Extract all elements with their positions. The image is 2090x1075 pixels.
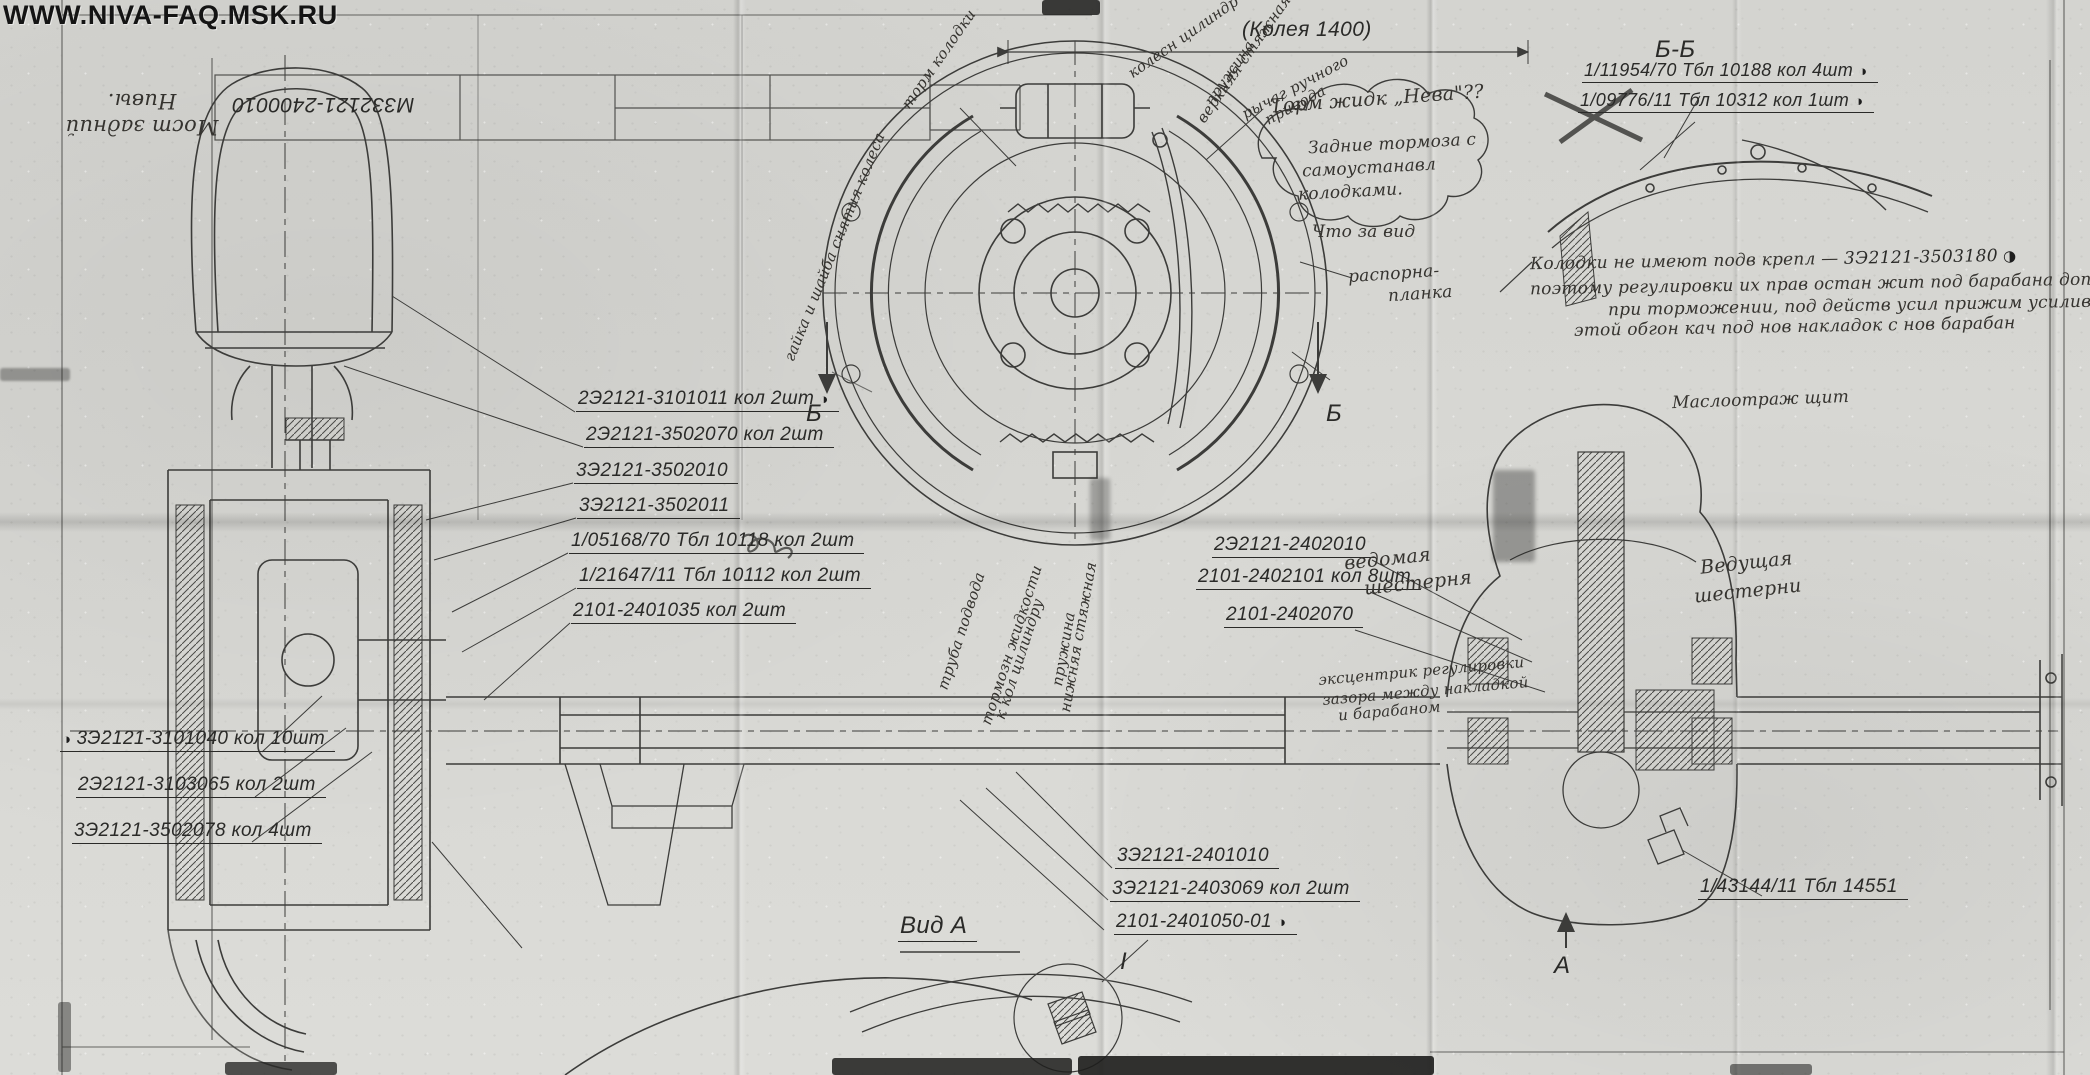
quadrant-mark-icon: ◑ — [1858, 63, 1867, 80]
part-callout: 3Э2121-3502011 — [577, 495, 740, 519]
scan-smudge — [1493, 470, 1535, 562]
scanned-drawing-sheet: WWW.NIVA-FAQ.MSK.RU М332121-2400010 Мост… — [0, 0, 2090, 1075]
note-shoes-part-number: 3Э2121-3503180 — [1844, 246, 1998, 269]
part-callout: 3Э2121-2401010 — [1115, 845, 1279, 869]
part-callout: 2Э2121-3502070 кол 2шт — [584, 424, 834, 448]
quadrant-mark-icon: ◑ — [1277, 914, 1286, 931]
part-callout: 2Э2121-3101011 кол 2шт◑ — [576, 388, 839, 412]
scan-smudge — [1078, 1056, 1434, 1075]
view-a-label: Вид А — [898, 912, 977, 942]
part-callout: 1/05168/70 Тбл 10118 кол 2шт — [569, 530, 864, 554]
detail-1-marker: I — [1120, 948, 1127, 976]
quadrant-mark-icon: ◑ — [62, 731, 71, 748]
site-watermark: WWW.NIVA-FAQ.MSK.RU — [3, 0, 338, 31]
part-callout: ◑3Э2121-3101040 кол 10шт — [60, 728, 335, 752]
scan-smudge — [58, 1002, 71, 1072]
quadrant-mark-icon: ◑ — [1854, 93, 1863, 110]
part-callout: 3Э2121-3502078 кол 4шт — [72, 820, 322, 844]
part-callout: 2Э2121-3103065 кол 2шт — [76, 774, 326, 798]
handwritten-sheet-title: Мост задний Нивы. — [62, 88, 222, 140]
scan-smudge — [832, 1058, 1072, 1075]
part-callout: 3Э2121-2403069 кол 2шт — [1110, 878, 1360, 902]
section-a-marker: А — [1554, 952, 1570, 980]
part-callout-breather: 1/43144/11 Тбл 14551 — [1698, 876, 1908, 900]
scan-smudge — [1730, 1064, 1812, 1075]
scan-smudge — [1042, 0, 1100, 15]
scan-smudge — [1090, 478, 1110, 540]
part-callout: 1/21647/11 Тбл 10112 кол 2шт — [577, 565, 871, 589]
part-callout: 2101-2401050-01◑ — [1114, 911, 1297, 935]
part-callout: 2101-2401035 кол 2шт — [571, 600, 796, 624]
axle-drawing-lineart — [0, 0, 2090, 1075]
quadrant-mark-icon: ◑ — [819, 391, 828, 408]
scan-smudge — [225, 1062, 337, 1075]
part-callout: 3Э2121-3502010 — [574, 460, 738, 484]
scan-smudge — [0, 368, 70, 381]
title-block-drawing-number: М332121-2400010 — [232, 92, 414, 116]
note-what-view: Что за вид — [1312, 222, 1415, 242]
part-callout: 1/11954/70 Тбл 10188 кол 4шт◑ — [1582, 60, 1878, 83]
section-b-marker-right: Б — [1326, 400, 1342, 428]
part-callout: 2101-2402070 — [1224, 604, 1363, 628]
quadrant-mark-icon: ◑ — [2003, 247, 2017, 265]
part-callout: 1/09776/11 Тбл 10312 кол 1шт◑ — [1578, 90, 1874, 113]
